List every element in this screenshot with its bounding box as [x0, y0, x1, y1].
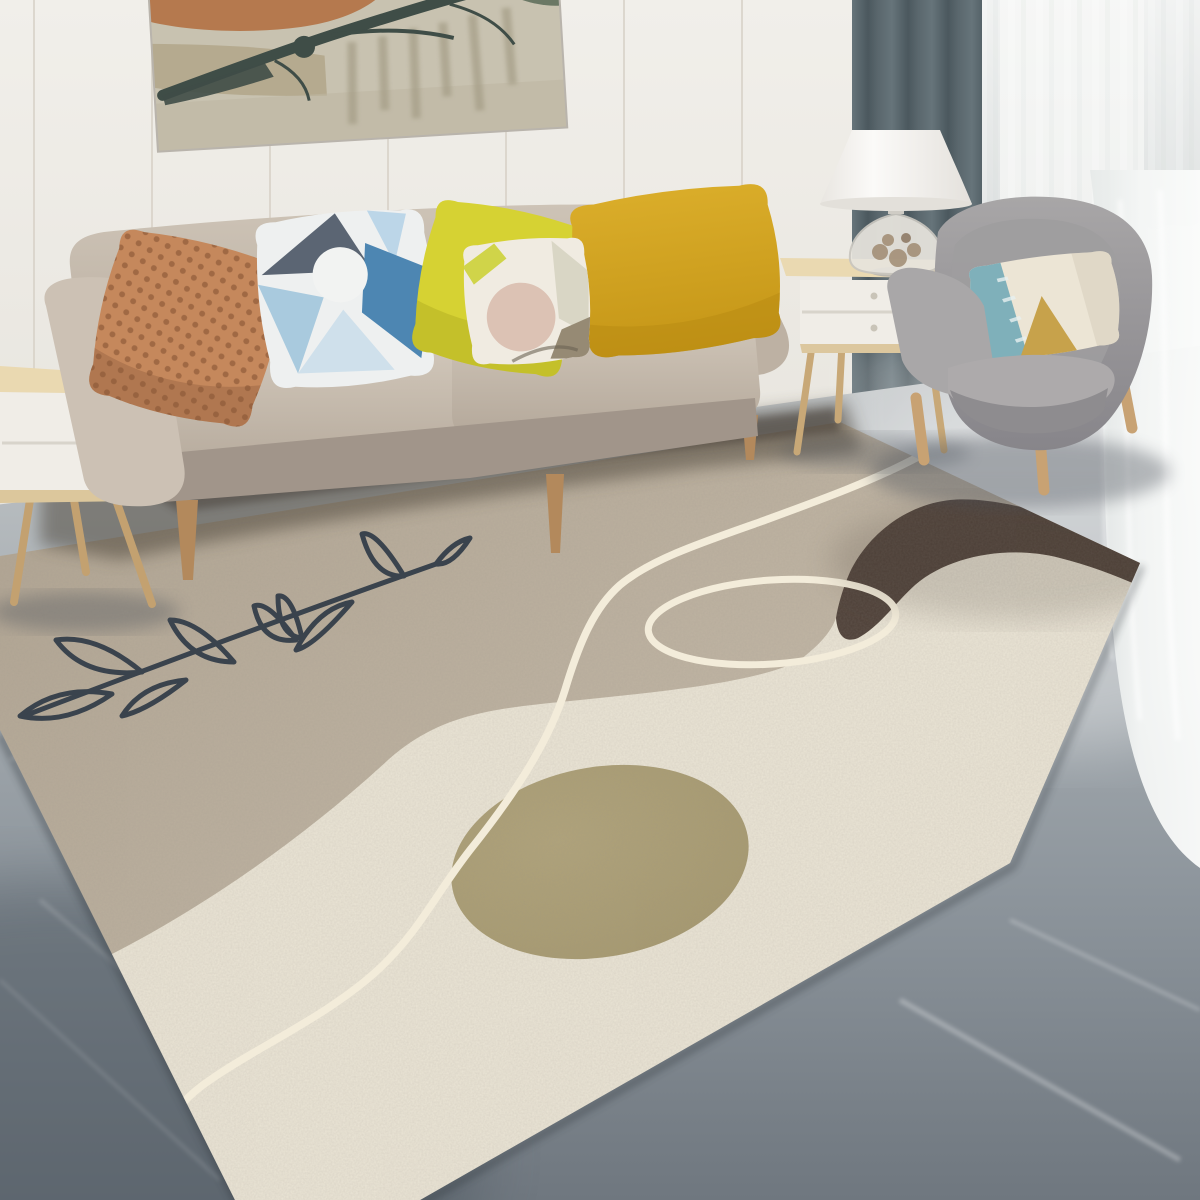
drawer-knob-top — [871, 293, 878, 300]
living-room-photo — [0, 0, 1200, 1200]
drawer-knob-bottom — [871, 325, 878, 332]
pastel-pillow — [461, 235, 595, 368]
scene-canvas — [0, 0, 1200, 1200]
lamp-shade-rim — [820, 197, 972, 211]
watercolor-painting — [148, 0, 567, 152]
blue-geometric-pillow — [252, 205, 442, 394]
